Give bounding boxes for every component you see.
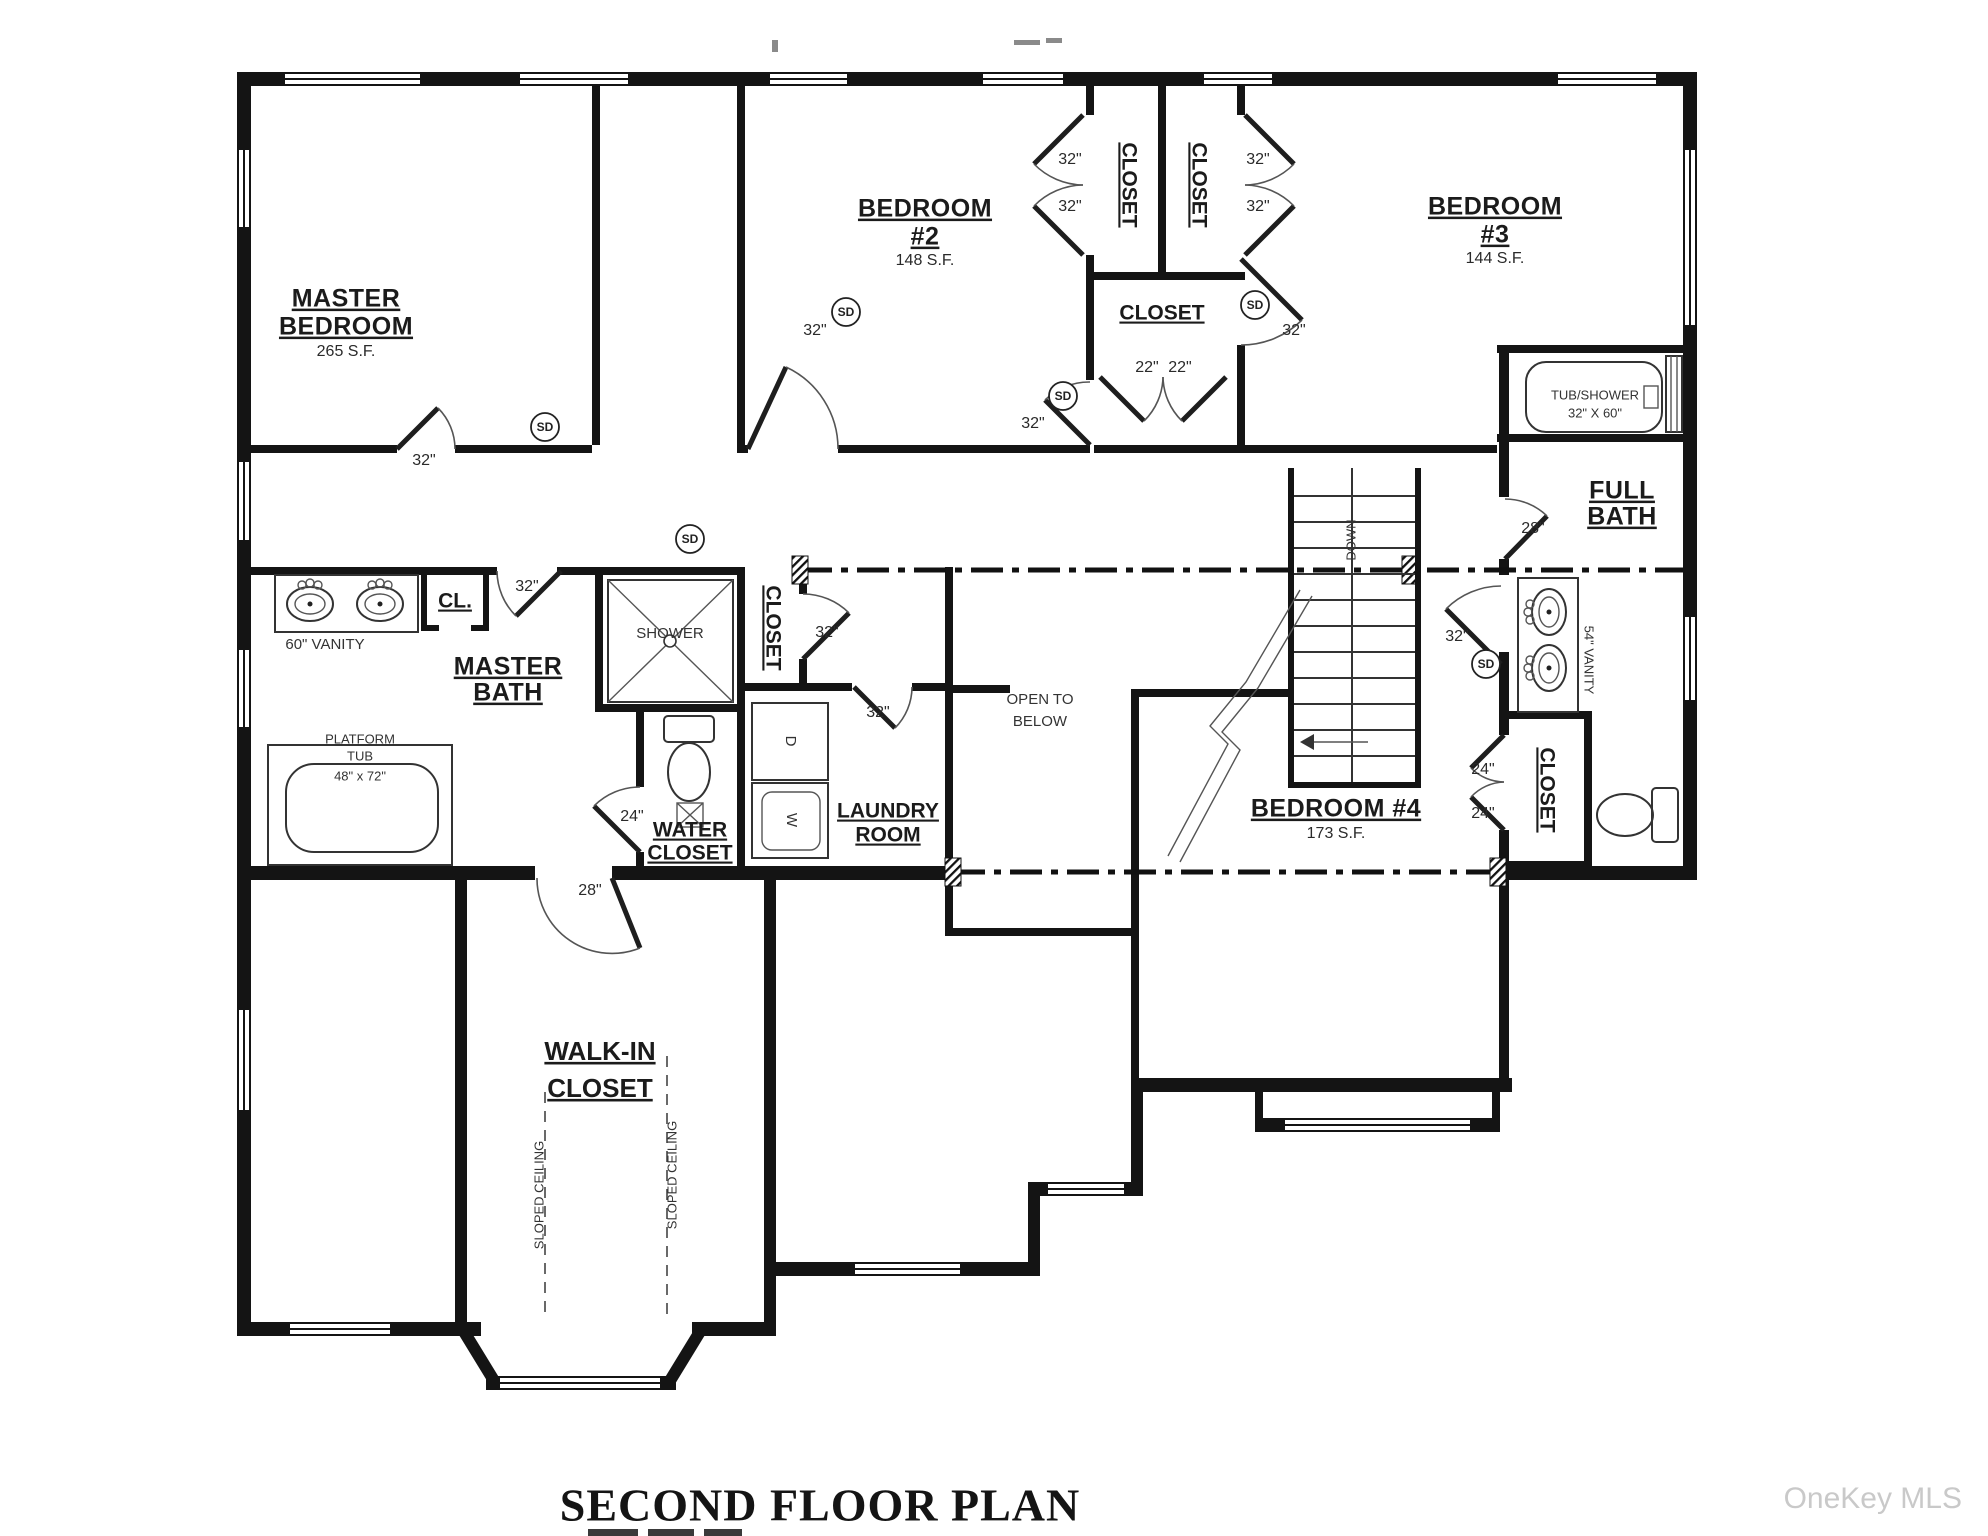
dim-bedroom3-door: 32" [1282, 322, 1305, 339]
tub-shower-size: 32" X 60" [1568, 405, 1622, 420]
cl-label: CL. [438, 590, 472, 613]
laundry-room-label: LAUNDRY [837, 800, 939, 823]
dim-hall-closet-a: 22" [1135, 359, 1158, 376]
sloped-ceiling-label: SLOPED CEILING [531, 1141, 546, 1249]
smoke-detector-icon: SD [1241, 291, 1269, 319]
bedroom2-area: 148 S.F. [896, 252, 955, 269]
dim-walkin-door: 28" [578, 882, 601, 899]
open-to-below-label: OPEN TO [1007, 691, 1074, 708]
window [1683, 150, 1697, 325]
window [237, 650, 251, 727]
dim-center-closet-door: 32" [815, 624, 838, 641]
laundry-appliances: D W [752, 703, 828, 858]
window [1683, 617, 1697, 700]
dim-master-door: 32" [412, 452, 435, 469]
truncated-caption-sliver [588, 1529, 742, 1536]
window [1285, 1118, 1470, 1132]
svg-text:SD: SD [537, 420, 554, 434]
svg-text:SD: SD [838, 305, 855, 319]
window [500, 1376, 660, 1390]
sloped-ceiling-label2: SLOPED CEILING [664, 1121, 679, 1229]
window [1558, 72, 1656, 86]
bedroom3-area: 144 S.F. [1466, 250, 1525, 267]
dim-closet2-a: 32" [1246, 151, 1269, 168]
window [1048, 1182, 1124, 1196]
window [770, 72, 847, 86]
hall-closet-label: CLOSET [1119, 302, 1204, 325]
window [237, 462, 251, 540]
dim-closet1-b: 32" [1058, 198, 1081, 215]
plan-title: SECOND FLOOR PLAN [560, 1480, 1080, 1531]
dim-closet1-a: 32" [1058, 151, 1081, 168]
vanity-54-label: 54" VANITY [1582, 626, 1597, 695]
master-bedroom-label2: BEDROOM [279, 313, 413, 341]
platform-tub-size: 48" x 72" [334, 768, 386, 783]
window [855, 1262, 960, 1276]
top-edge-artifacts [772, 38, 1062, 52]
full-bath-label2: BATH [1587, 503, 1657, 531]
svg-text:SD: SD [1055, 389, 1072, 403]
smoke-detector-icon: SD [1049, 382, 1077, 410]
dim-master-bath-door: 32" [515, 578, 538, 595]
bedroom3-label: BEDROOM [1428, 193, 1562, 221]
closet1-label: CLOSET [1117, 142, 1140, 227]
dim-hall-closet-b: 22" [1168, 359, 1191, 376]
shower-label: SHOWER [636, 625, 704, 642]
bedroom2-label2: #2 [911, 223, 940, 251]
stairs-down-label: DOWN [1343, 519, 1358, 560]
washer-label: W [783, 813, 800, 828]
bedroom2-label: BEDROOM [858, 195, 992, 223]
smoke-detector-icon: SD [832, 298, 860, 326]
dim-bedroom4-closet-b: 24" [1471, 805, 1494, 822]
master-bath-vanity [275, 575, 418, 632]
vanity-60-label: 60" VANITY [285, 636, 364, 653]
walk-in-closet-label2: CLOSET [547, 1073, 653, 1103]
smoke-detector-icon: SD [1472, 650, 1500, 678]
open-to-below-label2: BELOW [1013, 713, 1068, 730]
dim-bedroom4-closet-a: 24" [1471, 761, 1494, 778]
svg-text:SD: SD [1247, 298, 1264, 312]
bedroom4-area: 173 S.F. [1307, 825, 1366, 842]
full-bath-toilet [1597, 788, 1678, 842]
window [237, 150, 251, 227]
window [1204, 72, 1272, 86]
window [237, 1010, 251, 1110]
master-bedroom-area: 265 S.F. [317, 343, 376, 360]
master-bath-label2: BATH [473, 679, 543, 707]
water-closet-label2: CLOSET [647, 842, 732, 865]
dim-laundry-door: 32" [866, 704, 889, 721]
water-closet-toilet [664, 716, 714, 827]
full-bath-vanity [1518, 578, 1578, 712]
smoke-detector-icon: SD [531, 413, 559, 441]
window [285, 72, 420, 86]
closet2-label: CLOSET [1187, 142, 1210, 227]
dryer-label: D [782, 736, 799, 747]
stairs-direction-arrow [1300, 734, 1314, 750]
bedroom4-closet-label: CLOSET [1535, 747, 1558, 832]
center-closet-label: CLOSET [761, 585, 784, 670]
dim-full-bath-door: 28" [1521, 520, 1544, 537]
floor-plan-page: DOWN [0, 0, 1988, 1536]
dim-closet2-b: 32" [1246, 198, 1269, 215]
window [290, 1322, 390, 1336]
platform-tub-label: PLATFORM [325, 731, 395, 746]
svg-text:SD: SD [1478, 657, 1495, 671]
master-bath-label: MASTER [454, 653, 563, 681]
walk-in-closet-label: WALK-IN [544, 1036, 655, 1066]
laundry-room-label2: ROOM [855, 824, 920, 847]
master-bedroom-label: MASTER [292, 285, 401, 313]
dim-bedroom2-door: 32" [803, 322, 826, 339]
window [983, 72, 1063, 86]
floor-plan-drawing: DOWN [0, 0, 1988, 1536]
svg-text:SD: SD [682, 532, 699, 546]
exterior-walls [237, 72, 1697, 1390]
water-closet-label: WATER [653, 819, 727, 842]
dim-vestibule-door: 32" [1021, 415, 1044, 432]
platform-tub-label2: TUB [347, 748, 373, 763]
tub-shower-label: TUB/SHOWER [1551, 387, 1639, 402]
doors [397, 115, 1547, 953]
window [520, 72, 628, 86]
ceiling-break-lines [792, 556, 1683, 886]
bedroom3-label2: #3 [1481, 221, 1510, 249]
smoke-detectors: SD SD SD SD SD SD [531, 291, 1500, 678]
bedroom4-label: BEDROOM #4 [1251, 795, 1421, 823]
dim-bedroom4-door: 32" [1445, 628, 1468, 645]
full-bath-label: FULL [1589, 477, 1655, 505]
smoke-detector-icon: SD [676, 525, 704, 553]
dim-wc-door: 24" [620, 808, 643, 825]
watermark: OneKey MLS [1784, 1482, 1962, 1515]
